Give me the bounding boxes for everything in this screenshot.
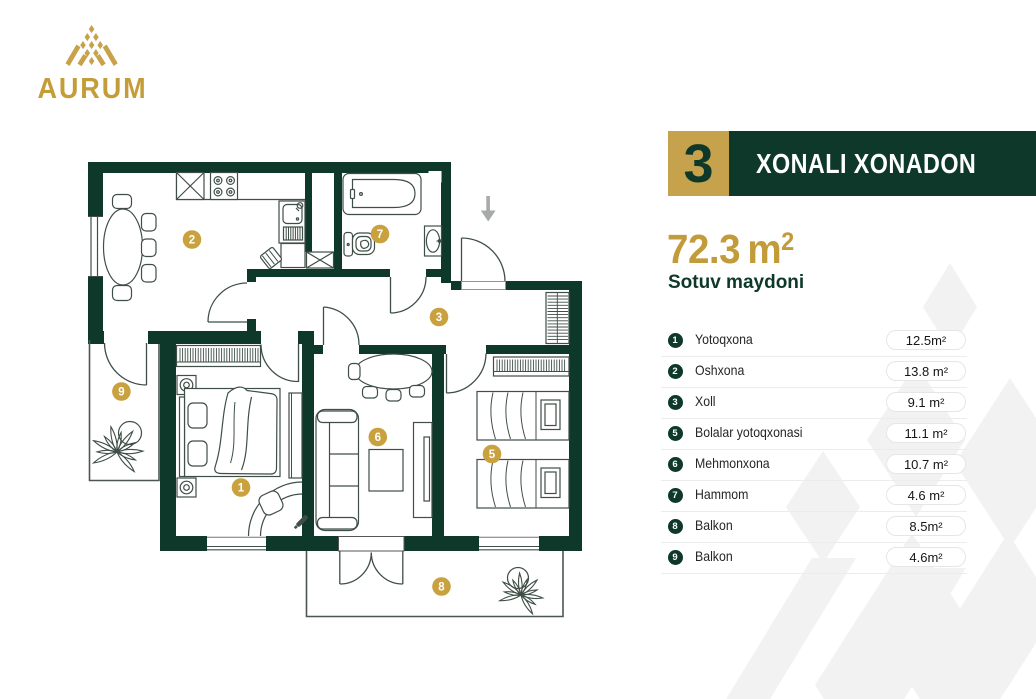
svg-text:2: 2 <box>189 235 195 247</box>
svg-text:7: 7 <box>377 229 383 241</box>
svg-text:1: 1 <box>238 483 245 495</box>
svg-text:8: 8 <box>438 582 445 594</box>
svg-text:5: 5 <box>489 449 496 461</box>
svg-text:6: 6 <box>375 432 381 444</box>
svg-text:9: 9 <box>118 387 124 399</box>
svg-text:3: 3 <box>436 312 442 324</box>
